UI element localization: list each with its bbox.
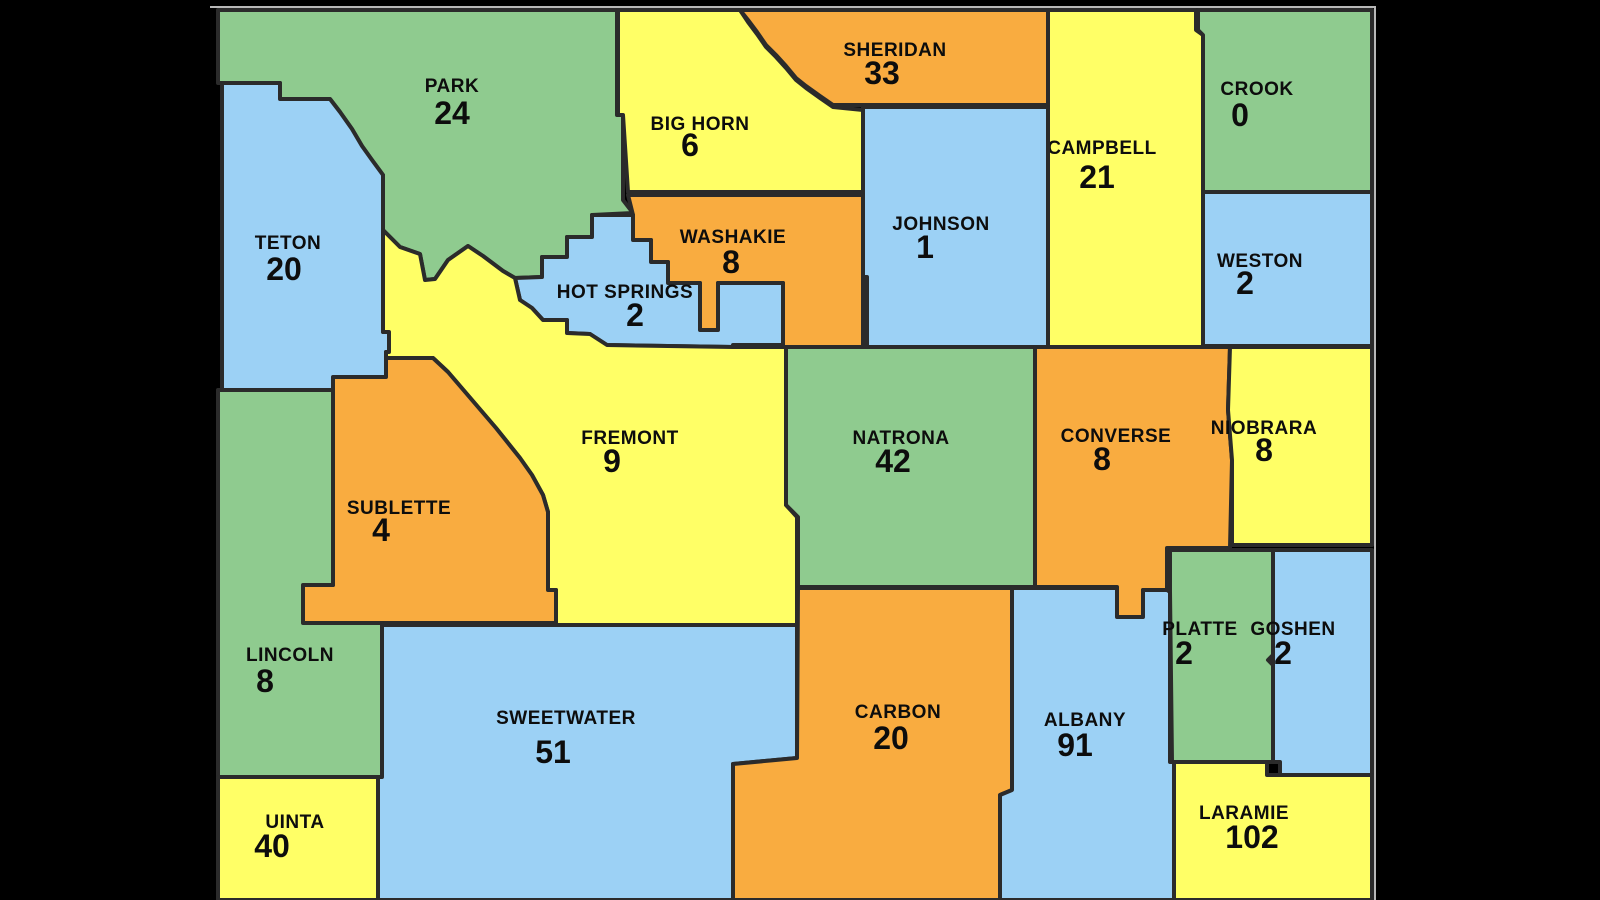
county-value-crook: 0 bbox=[1231, 97, 1249, 133]
county-value-campbell: 21 bbox=[1079, 159, 1115, 195]
county-value-niobrara: 8 bbox=[1255, 432, 1273, 468]
county-name-sublette: SUBLETTE bbox=[347, 498, 451, 519]
county-shape-niobrara[interactable] bbox=[1228, 347, 1372, 545]
county-value-albany: 91 bbox=[1057, 727, 1093, 763]
county-value-park: 24 bbox=[434, 95, 470, 131]
county-name-platte: PLATTE bbox=[1162, 619, 1237, 640]
county-value-fremont: 9 bbox=[603, 443, 621, 479]
county-name-weston: WESTON bbox=[1217, 251, 1303, 272]
county-value-laramie: 102 bbox=[1225, 819, 1278, 855]
county-shape-crook[interactable] bbox=[1198, 10, 1372, 192]
county-name-goshen: GOSHEN bbox=[1250, 619, 1335, 640]
county-value-platte: 2 bbox=[1175, 635, 1193, 671]
county-value-sheridan: 33 bbox=[864, 55, 900, 91]
county-value-johnson: 1 bbox=[916, 229, 934, 265]
map-canvas: PARK24BIG HORN6SHERIDAN33CAMPBELL21CROOK… bbox=[0, 0, 1600, 900]
county-value-big-horn: 6 bbox=[681, 127, 699, 163]
county-name-park: PARK bbox=[425, 76, 479, 97]
county-value-natrona: 42 bbox=[875, 443, 911, 479]
county-name-johnson: JOHNSON bbox=[892, 214, 989, 235]
county-name-big-horn: BIG HORN bbox=[651, 114, 750, 135]
county-name-hot-springs: HOT SPRINGS bbox=[557, 282, 693, 303]
county-value-teton: 20 bbox=[266, 251, 302, 287]
county-value-washakie: 8 bbox=[722, 244, 740, 280]
county-value-hot-springs: 2 bbox=[626, 297, 644, 333]
county-value-lincoln: 8 bbox=[256, 663, 274, 699]
county-shape-uinta[interactable] bbox=[218, 777, 378, 900]
county-shape-campbell[interactable] bbox=[1048, 10, 1203, 348]
county-value-sublette: 4 bbox=[372, 512, 390, 548]
county-value-uinta: 40 bbox=[254, 828, 290, 864]
county-name-converse: CONVERSE bbox=[1061, 426, 1172, 447]
county-name-sweetwater: SWEETWATER bbox=[496, 708, 636, 729]
county-value-weston: 2 bbox=[1236, 265, 1254, 301]
county-value-goshen: 2 bbox=[1274, 635, 1292, 671]
county-value-converse: 8 bbox=[1093, 441, 1111, 477]
county-value-sweetwater: 51 bbox=[535, 734, 571, 770]
county-value-carbon: 20 bbox=[873, 720, 909, 756]
county-name-fremont: FREMONT bbox=[581, 428, 678, 449]
county-name-campbell: CAMPBELL bbox=[1047, 138, 1157, 159]
wyoming-county-map: PARK24BIG HORN6SHERIDAN33CAMPBELL21CROOK… bbox=[0, 0, 1600, 900]
